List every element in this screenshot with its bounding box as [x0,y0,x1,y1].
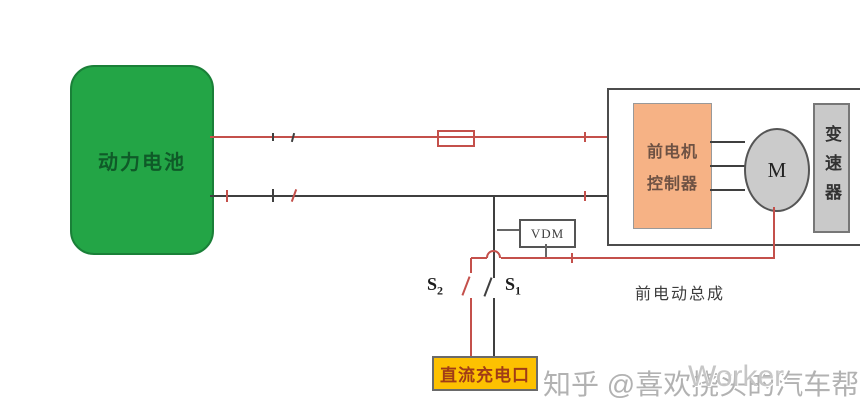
assembly-caption: 前电动总成 [635,280,725,304]
switch-s2-blade [461,276,470,295]
vdm-label: VDM [531,226,564,242]
circuit-diagram: 动力电池 前电机 控制器 M 变速器 VDM [0,0,860,417]
front-motor-controller-block: 前电机 控制器 [633,103,712,229]
transmission-block: 变速器 [813,103,850,233]
red-bus-wire-left [471,257,487,259]
motor-symbol: M [744,128,810,212]
charge-positive-wire-upper [470,258,472,273]
power-battery-block: 动力电池 [70,65,214,255]
vdm-connector-down [545,244,547,258]
positive-wire [210,136,607,138]
switch-s2-sub: 2 [437,284,443,298]
switch-s1-base: S [505,274,515,294]
charge-negative-wire-lower [493,298,495,357]
charge-negative-wire-upper [493,195,495,278]
fuse-symbol [437,130,475,147]
switch-s2-base: S [427,274,437,294]
motor-red-drop-wire [773,207,775,258]
phase-line [710,165,745,167]
switch-s1-blade [483,277,492,296]
connector-tick [272,133,274,141]
motor-label: M [768,158,787,183]
controller-label-line2: 控制器 [647,170,698,194]
dc-charge-port-block: 直流充电口 [432,356,538,391]
controller-label-line1: 前电机 [647,138,698,162]
phase-line [710,141,745,143]
switch-s1-sub: 1 [515,284,521,298]
vdm-connector-left [497,229,519,231]
transmission-label: 变速器 [819,125,844,212]
connector-tick [226,190,228,202]
charge-positive-wire-lower [470,298,472,357]
connector-tick [584,191,586,201]
connector-tick [584,132,586,142]
watermark-overlay-text: Worker [688,360,784,394]
negative-wire [210,195,607,197]
switch-s1-label: S1 [505,274,521,299]
connector-tick [272,189,274,202]
wire-crossover-hop [486,250,501,258]
vdm-module: VDM [519,219,576,248]
switch-s2-label: S2 [427,274,443,299]
phase-line [710,189,745,191]
power-battery-label: 动力电池 [98,146,186,175]
dc-charge-port-label: 直流充电口 [440,361,530,386]
red-bus-wire [501,257,775,259]
